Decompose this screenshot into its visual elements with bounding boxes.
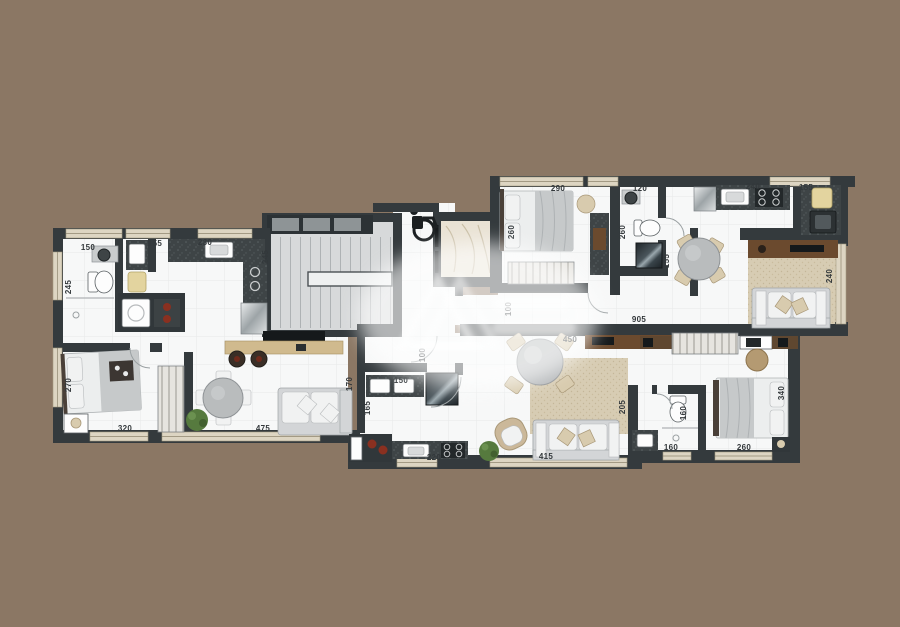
dimension-label: 165 [363,401,372,415]
sofa [752,288,830,328]
dimension-label: 155 [799,183,813,192]
dimension-label: 260 [507,225,516,239]
window [90,432,148,441]
dimension-label: 475 [256,424,270,433]
shower [636,243,662,268]
window [126,229,170,238]
kitchen [694,185,790,211]
dimension-label: 245 [64,280,73,294]
dimension-label: 160 [679,406,688,420]
dimension-label: 415 [539,452,553,461]
watermark-logo [358,242,598,390]
sink [370,379,390,393]
service-area [801,185,841,235]
window [715,452,772,460]
dining-table [674,234,726,287]
laundry-closet [349,434,392,462]
knob [163,315,171,323]
laundry-tub [126,240,148,270]
dimension-label: 320 [118,424,132,433]
toilet [634,220,660,236]
desk [740,336,772,349]
dimension-label: 155 [662,254,671,268]
dimension-label: 230 [198,238,212,247]
bathroom-sink [92,246,118,262]
pillow [770,410,784,435]
decor [758,245,766,253]
window [663,452,691,460]
closet-door [351,437,362,460]
tv [592,337,614,345]
washer-cabinet [118,293,185,332]
speaker [778,338,788,347]
wardrobe [672,333,738,354]
bed-tray [109,360,134,381]
dimension-label: 240 [825,269,834,283]
refrigerator [241,303,267,334]
tv [790,245,824,252]
dimension-label: 205 [618,400,627,414]
dimension-label: 340 [777,386,786,400]
floor-plan-drawing: 1501552302452452901202401552602601552401… [0,0,900,627]
bed [500,189,573,251]
washer-knob [379,446,388,455]
pouf [746,349,768,371]
knob [163,303,171,311]
dimension-label: 240 [746,182,760,191]
vanity [632,430,658,451]
dimension-label: 220 [427,453,441,462]
window [500,177,583,186]
dimension-label: 150 [81,243,95,252]
desk-chair [577,195,595,213]
plant [479,441,499,461]
sink [637,434,653,447]
desk-top [593,228,606,250]
washing-machine [122,299,150,327]
window [53,252,62,300]
round-sink [625,192,637,204]
dimension-label: 260 [618,225,627,239]
dimension-label: 270 [64,378,73,392]
plant [186,409,208,431]
sofa [278,388,352,435]
dimension-label: 155 [148,239,162,248]
laundry-basket [128,272,146,292]
toilet [88,271,113,293]
refrigerator [694,187,716,211]
window [66,229,122,238]
floor-plan-canvas: 1501552302452452901202401552602601552401… [0,0,900,627]
speaker [643,338,653,347]
nightstand [64,414,88,433]
tv [263,331,325,341]
dimension-label: 290 [551,184,565,193]
window [198,229,252,238]
wardrobe [158,366,184,432]
dimension-label: 905 [632,315,646,324]
laundry-basket [812,188,832,208]
pillow [505,195,520,220]
dimension-label: 150 [394,376,408,385]
dimension-label: 160 [664,443,678,452]
bed-bench [713,380,719,436]
dimension-label: 170 [345,377,354,391]
laptop [746,338,761,347]
washer-knob [368,440,377,449]
dimension-label: 260 [737,443,751,452]
dimension-label: 120 [633,184,647,193]
nightstand [772,437,790,452]
dimension-label: 245 [261,250,270,264]
bar-decor [296,344,306,351]
window [588,177,618,186]
